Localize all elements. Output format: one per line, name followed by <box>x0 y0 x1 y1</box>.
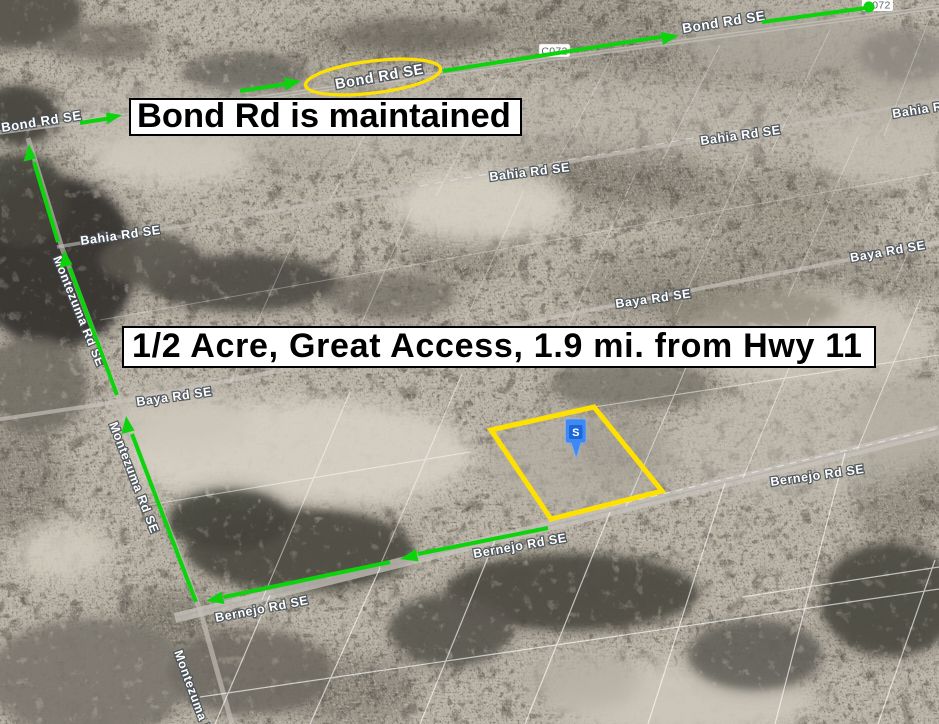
svg-text:S: S <box>572 427 579 439</box>
